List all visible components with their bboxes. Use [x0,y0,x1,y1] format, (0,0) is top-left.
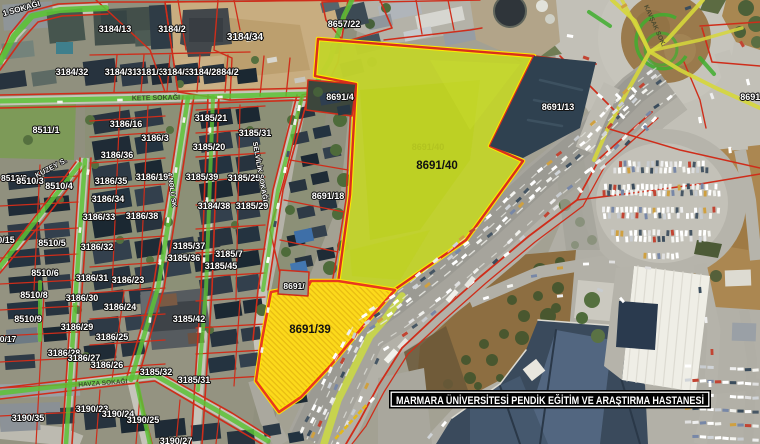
svg-text:3186/33: 3186/33 [83,212,116,222]
svg-text:3186/23: 3186/23 [112,275,145,285]
svg-text:8510/8: 8510/8 [20,290,48,300]
svg-text:MARMARA ÜNİVERSİTESİ PENDİK EĞ: MARMARA ÜNİVERSİTESİ PENDİK EĞİTİM VE AR… [396,394,704,407]
svg-text:3184/13: 3184/13 [99,24,132,34]
svg-text:3186/35: 3186/35 [95,176,128,186]
svg-text:3186/26: 3186/26 [91,360,124,370]
svg-text:3184/31: 3184/31 [105,67,138,77]
svg-text:3186/24: 3186/24 [104,302,137,312]
svg-text:3186/3: 3186/3 [141,133,169,143]
svg-text:8691/18: 8691/18 [312,191,345,201]
svg-text:3181/3: 3181/3 [136,67,164,77]
svg-text:8691/1: 8691/1 [740,92,760,102]
svg-text:3185/42: 3185/42 [173,314,206,324]
svg-text:3185/29: 3185/29 [236,201,269,211]
svg-text:3186/29: 3186/29 [61,322,94,332]
svg-text:8691/13: 8691/13 [542,102,575,112]
svg-text:3190/25: 3190/25 [127,415,160,425]
svg-text:3185/45: 3185/45 [205,261,238,271]
svg-text:8691/39: 8691/39 [289,324,331,336]
svg-text:3184/32: 3184/32 [56,67,89,77]
svg-text:8510/5: 8510/5 [38,238,66,248]
svg-text:0/17: 0/17 [0,334,17,344]
svg-text:8657/22: 8657/22 [328,19,361,29]
svg-text:8691/40: 8691/40 [412,142,445,152]
svg-text:84/2: 84/2 [221,67,239,77]
svg-text:3185/31: 3185/31 [178,375,211,385]
svg-text:3186/34: 3186/34 [92,194,125,204]
svg-text:3190/35: 3190/35 [12,413,45,423]
svg-text:8510/9: 8510/9 [14,314,42,324]
svg-text:8691/40: 8691/40 [416,160,458,172]
svg-text:3186/30: 3186/30 [66,293,99,303]
svg-text:0/15: 0/15 [0,235,15,245]
svg-text:8691/4: 8691/4 [326,92,354,102]
svg-text:3186/31: 3186/31 [76,273,109,283]
svg-text:3186/32: 3186/32 [81,242,114,252]
svg-text:8510/6: 8510/6 [31,268,59,278]
svg-text:3186/38: 3186/38 [126,211,159,221]
svg-text:3185/7: 3185/7 [215,249,243,259]
svg-text:8691/: 8691/ [283,281,305,291]
svg-text:3185/37: 3185/37 [173,241,206,251]
svg-text:3185/20: 3185/20 [193,142,226,152]
svg-text:3190/27: 3190/27 [160,436,193,444]
svg-text:3185/21: 3185/21 [195,113,228,123]
svg-text:3184/28: 3184/28 [189,67,222,77]
svg-text:3185/31: 3185/31 [239,128,272,138]
svg-text:3185/25: 3185/25 [228,173,261,183]
svg-text:8510/4: 8510/4 [45,181,73,191]
svg-text:3186/36: 3186/36 [101,150,134,160]
svg-text:3184/38: 3184/38 [198,201,231,211]
svg-text:3186/25: 3186/25 [96,332,129,342]
svg-text:3184/34: 3184/34 [227,32,264,43]
svg-text:3185/39: 3185/39 [186,172,219,182]
svg-text:3184/3: 3184/3 [162,67,190,77]
svg-text:3186/16: 3186/16 [110,119,143,129]
svg-text:3186/19: 3186/19 [136,172,169,182]
svg-text:3185/36: 3185/36 [168,253,201,263]
svg-text:8511/1: 8511/1 [32,125,59,135]
svg-text:3185/32: 3185/32 [140,367,173,377]
svg-text:3184/2: 3184/2 [158,24,186,34]
